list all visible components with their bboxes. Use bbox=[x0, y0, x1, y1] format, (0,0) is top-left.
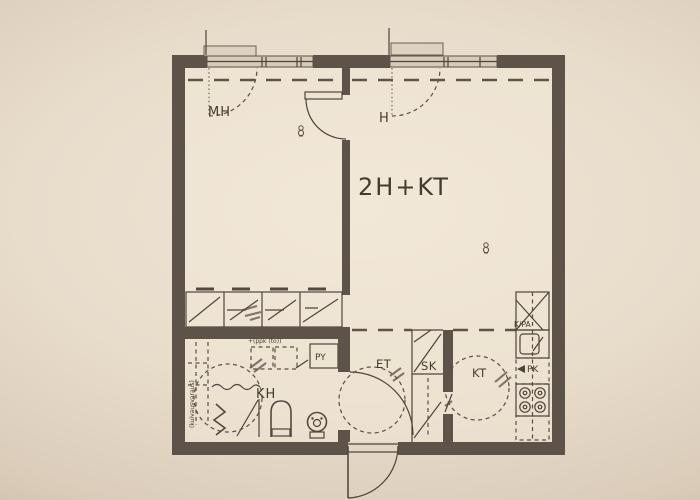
room-label-mh: MH bbox=[208, 105, 231, 120]
fridge-freezer-label: K/PA bbox=[514, 320, 531, 329]
room-label-sk: SK bbox=[421, 359, 437, 373]
entrance-door-swing bbox=[348, 446, 398, 498]
floorplan-drawing: MH H 2H+KT (kuivausvaraus) bbox=[0, 0, 700, 500]
dishwasher-label: PK bbox=[527, 365, 539, 375]
room-label-et: ET bbox=[376, 357, 392, 371]
room-label-h: H bbox=[379, 111, 390, 126]
room-label-kt: KT bbox=[472, 366, 487, 380]
laundry-note: +(ppk (to)) bbox=[248, 338, 281, 345]
laundry-spot-label: PY bbox=[315, 353, 326, 363]
floorplan-photo: MH H 2H+KT (kuivausvaraus) bbox=[0, 0, 700, 500]
entrance-door bbox=[348, 444, 398, 498]
room-label-kh: KH bbox=[256, 387, 276, 402]
apartment-type-label: 2H+KT bbox=[358, 173, 450, 201]
